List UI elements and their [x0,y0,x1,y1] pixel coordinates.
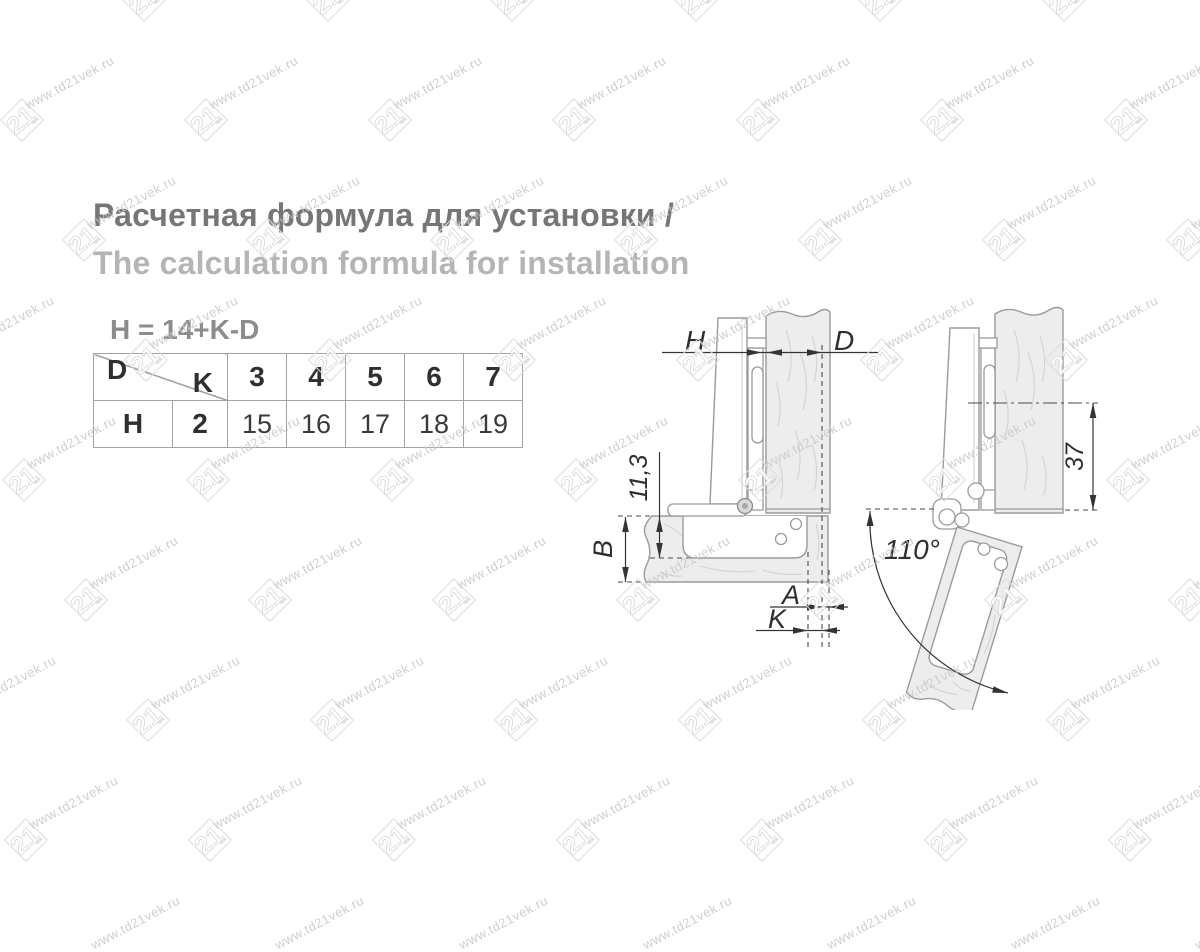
watermark-text: www.td21vek.ru [454,533,548,593]
watermark-text: www.td21vek.ru [206,53,300,113]
hinge-arm-right [941,328,979,510]
svg-text:век: век [1137,476,1147,486]
watermark-text: www.td21vek.ru [210,773,304,833]
table-header-cell: 6 [405,354,464,401]
catalog-page: { "watermark": { "text": "www.td21vek.ru… [0,0,1200,900]
svg-text:21: 21 [926,821,965,860]
svg-text:21: 21 [492,0,531,20]
svg-text:век: век [337,0,347,6]
watermark-logo: 21век [246,576,294,624]
svg-text:век: век [767,116,777,126]
watermark-text: www.td21vek.ru [272,893,366,952]
svg-text:21: 21 [370,101,409,140]
watermark-text: www.td21vek.ru [1190,533,1200,593]
watermark-text: www.td21vek.ru [22,53,116,113]
watermark-logo: 21век [120,0,168,24]
cup-screw-hole [776,534,787,545]
watermark-logo: 21век [738,816,786,864]
table-value-cell: 15 [228,401,287,448]
watermark-logo: 21век [734,96,782,144]
table-header-cell: 7 [464,354,523,401]
svg-text:век: век [399,116,409,126]
hinge-pivot-right [939,509,955,525]
watermark-logo: 21век [62,576,110,624]
plate-top-block [745,338,766,348]
svg-text:21: 21 [558,821,597,860]
svg-text:21: 21 [554,101,593,140]
watermark-text: www.td21vek.ru [456,893,550,952]
svg-text:21: 21 [922,101,961,140]
table-header-row: D K 3 4 5 6 7 [94,354,523,401]
watermark-logo: 21век [1106,816,1154,864]
watermark-text: www.td21vek.ru [26,773,120,833]
watermark-logo: 21век [366,96,414,144]
svg-text:21: 21 [738,101,777,140]
watermark-logo: 21век [184,456,232,504]
svg-text:век: век [157,716,167,726]
installation-formula: H = 14+K-D [110,314,259,346]
watermark-logo: 21век [672,0,720,24]
svg-text:21: 21 [4,461,43,500]
svg-text:21: 21 [742,821,781,860]
watermark-text: www.td21vek.ru [574,53,668,113]
watermark-text: www.td21vek.ru [332,653,426,713]
watermark-text: www.td21vek.ru [390,53,484,113]
watermark-logo: 21век [980,216,1028,264]
dim-label-k: K [768,604,787,634]
arm-foot [668,504,747,516]
svg-text:век: век [1135,116,1145,126]
watermark-text: www.td21vek.ru [640,893,734,952]
watermark-text: www.td21vek.ru [86,533,180,593]
watermark-text: www.td21vek.ru [946,773,1040,833]
watermark-logo: 21век [2,816,50,864]
watermark-text: www.td21vek.ru [824,893,918,952]
svg-text:век: век [709,716,719,726]
svg-text:21: 21 [2,101,41,140]
svg-text:21: 21 [308,0,347,20]
svg-text:21: 21 [1106,101,1145,140]
svg-text:век: век [893,716,903,726]
svg-text:век: век [401,476,411,486]
svg-text:век: век [279,596,289,606]
table-header-cell: 4 [287,354,346,401]
svg-text:век: век [341,716,351,726]
table-value-cell: 18 [405,401,464,448]
svg-text:век: век [705,0,715,6]
svg-text:век: век [523,356,533,366]
svg-text:21: 21 [1168,221,1200,260]
door-screw-hole [978,543,990,555]
svg-text:век: век [1073,0,1083,6]
watermark-text: www.td21vek.ru [1004,173,1098,233]
watermark-logo: 21век [368,456,416,504]
watermark-text: www.td21vek.ru [578,773,672,833]
watermark-text: www.td21vek.ru [1128,413,1200,473]
watermark-text: www.td21vek.ru [758,53,852,113]
svg-text:21: 21 [860,0,899,20]
svg-text:век: век [95,596,105,606]
svg-text:21: 21 [800,221,839,260]
svg-text:век: век [829,236,839,246]
svg-text:век: век [31,116,41,126]
dim-label-h: H [685,325,706,356]
plate-slot [752,367,763,443]
svg-text:21: 21 [496,701,535,740]
watermark-text: www.td21vek.ru [1188,173,1200,233]
svg-text:21: 21 [190,821,229,860]
svg-text:век: век [153,0,163,6]
cabinet-panel-right [995,308,1063,514]
watermark-text: www.td21vek.ru [394,773,488,833]
k-value-cell: 2 [173,401,228,448]
watermark-text: www.td21vek.ru [1130,773,1200,833]
door-screw-hole [995,558,1008,571]
cup-screw-hole [791,519,802,530]
svg-text:век: век [521,0,531,6]
svg-text:век: век [587,836,597,846]
watermark-logo: 21век [856,0,904,24]
svg-text:21: 21 [6,821,45,860]
watermark-logo: 21век [308,696,356,744]
corner-label-d: D [107,354,127,386]
watermark-logo: 21век [488,0,536,24]
table-header-cell: 3 [228,354,287,401]
watermark-text: www.td21vek.ru [1192,893,1200,952]
svg-text:21: 21 [374,821,413,860]
watermark-text: www.td21vek.ru [0,653,59,713]
svg-text:век: век [219,836,229,846]
svg-text:21: 21 [188,461,227,500]
svg-text:век: век [1139,836,1149,846]
hinge-arm [710,318,747,504]
svg-text:21: 21 [128,701,167,740]
watermark-text: www.td21vek.ru [1008,893,1102,952]
svg-text:21: 21 [676,0,715,20]
watermark-text: www.td21vek.ru [820,173,914,233]
svg-text:21: 21 [250,581,289,620]
svg-text:21: 21 [186,101,225,140]
watermark-text: www.td21vek.ru [0,293,57,353]
dim-label-b: B [588,540,618,558]
watermark-logo: 21век [922,816,970,864]
table-value-cell: 16 [287,401,346,448]
svg-text:век: век [951,116,961,126]
svg-text:21: 21 [1110,821,1149,860]
svg-text:век: век [955,836,965,846]
svg-text:век: век [217,476,227,486]
dim-label-37: 37 [1061,442,1089,471]
watermark-logo: 21век [430,576,478,624]
watermark-logo: 21век [550,96,598,144]
svg-text:21: 21 [312,701,351,740]
svg-text:21: 21 [66,581,105,620]
svg-text:век: век [1013,236,1023,246]
watermark-text: www.td21vek.ru [270,533,364,593]
hinge-cup [683,516,807,558]
table-header-cell: 5 [346,354,405,401]
watermark-text: www.td21vek.ru [330,293,424,353]
watermark-logo: 21век [918,96,966,144]
svg-text:21: 21 [984,221,1023,260]
watermark-logo: 21век [0,456,48,504]
arm-knuckle [968,483,984,499]
watermark-text: www.td21vek.ru [148,653,242,713]
watermark-logo: 21век [1102,96,1150,144]
svg-text:21: 21 [1044,0,1083,20]
svg-text:век: век [525,716,535,726]
cabinet-panel [766,310,830,514]
corner-label-k: K [193,367,213,399]
watermark-logo: 21век [492,696,540,744]
plate-slot-right [984,365,995,438]
watermark-text: www.td21vek.ru [88,893,182,952]
watermark-logo: 21век [796,216,844,264]
svg-text:век: век [889,0,899,6]
watermark-logo: 21век [124,696,172,744]
hinge-technical-drawing: H D 11,3 B A K [560,280,1120,710]
svg-text:век: век [463,596,473,606]
watermark-logo: 21век [1040,0,1088,24]
watermark-logo: 21век [0,96,46,144]
watermark-text: www.td21vek.ru [762,773,856,833]
svg-text:21: 21 [434,581,473,620]
svg-text:век: век [215,116,225,126]
watermark-logo: 21век [554,816,602,864]
hk-table: D K 3 4 5 6 7 H 2 15 16 17 18 19 [93,353,523,448]
svg-text:21: 21 [124,0,163,20]
page-title-ru: Расчетная формула для установки / [93,197,674,234]
table-value-row: H 2 15 16 17 18 19 [94,401,523,448]
table-corner-cell: D K [94,354,228,401]
page-title-en: The calculation formula for installation [93,245,690,282]
svg-text:век: век [35,836,45,846]
watermark-text: www.td21vek.ru [1126,53,1200,113]
watermark-logo: 21век [186,816,234,864]
watermark-logo: 21век [182,96,230,144]
left-hinge-section [644,310,830,583]
svg-text:век: век [403,836,413,846]
watermark-logo: 21век [1164,216,1200,264]
dim-label-d: D [834,325,854,356]
table-value-cell: 19 [464,401,523,448]
watermark-logo: 21век [1166,576,1200,624]
svg-text:век: век [33,476,43,486]
svg-text:век: век [1077,716,1087,726]
watermark-text: www.td21vek.ru [942,53,1036,113]
row-label-h: H [94,401,173,448]
dim-label-angle: 110° [884,534,940,565]
table-value-cell: 17 [346,401,405,448]
svg-text:век: век [771,836,781,846]
svg-text:21: 21 [372,461,411,500]
svg-text:21: 21 [1170,581,1200,620]
dim-label-cup-depth: 11,3 [625,455,653,502]
watermark-logo: 21век [304,0,352,24]
watermark-logo: 21век [370,816,418,864]
svg-text:век: век [583,116,593,126]
